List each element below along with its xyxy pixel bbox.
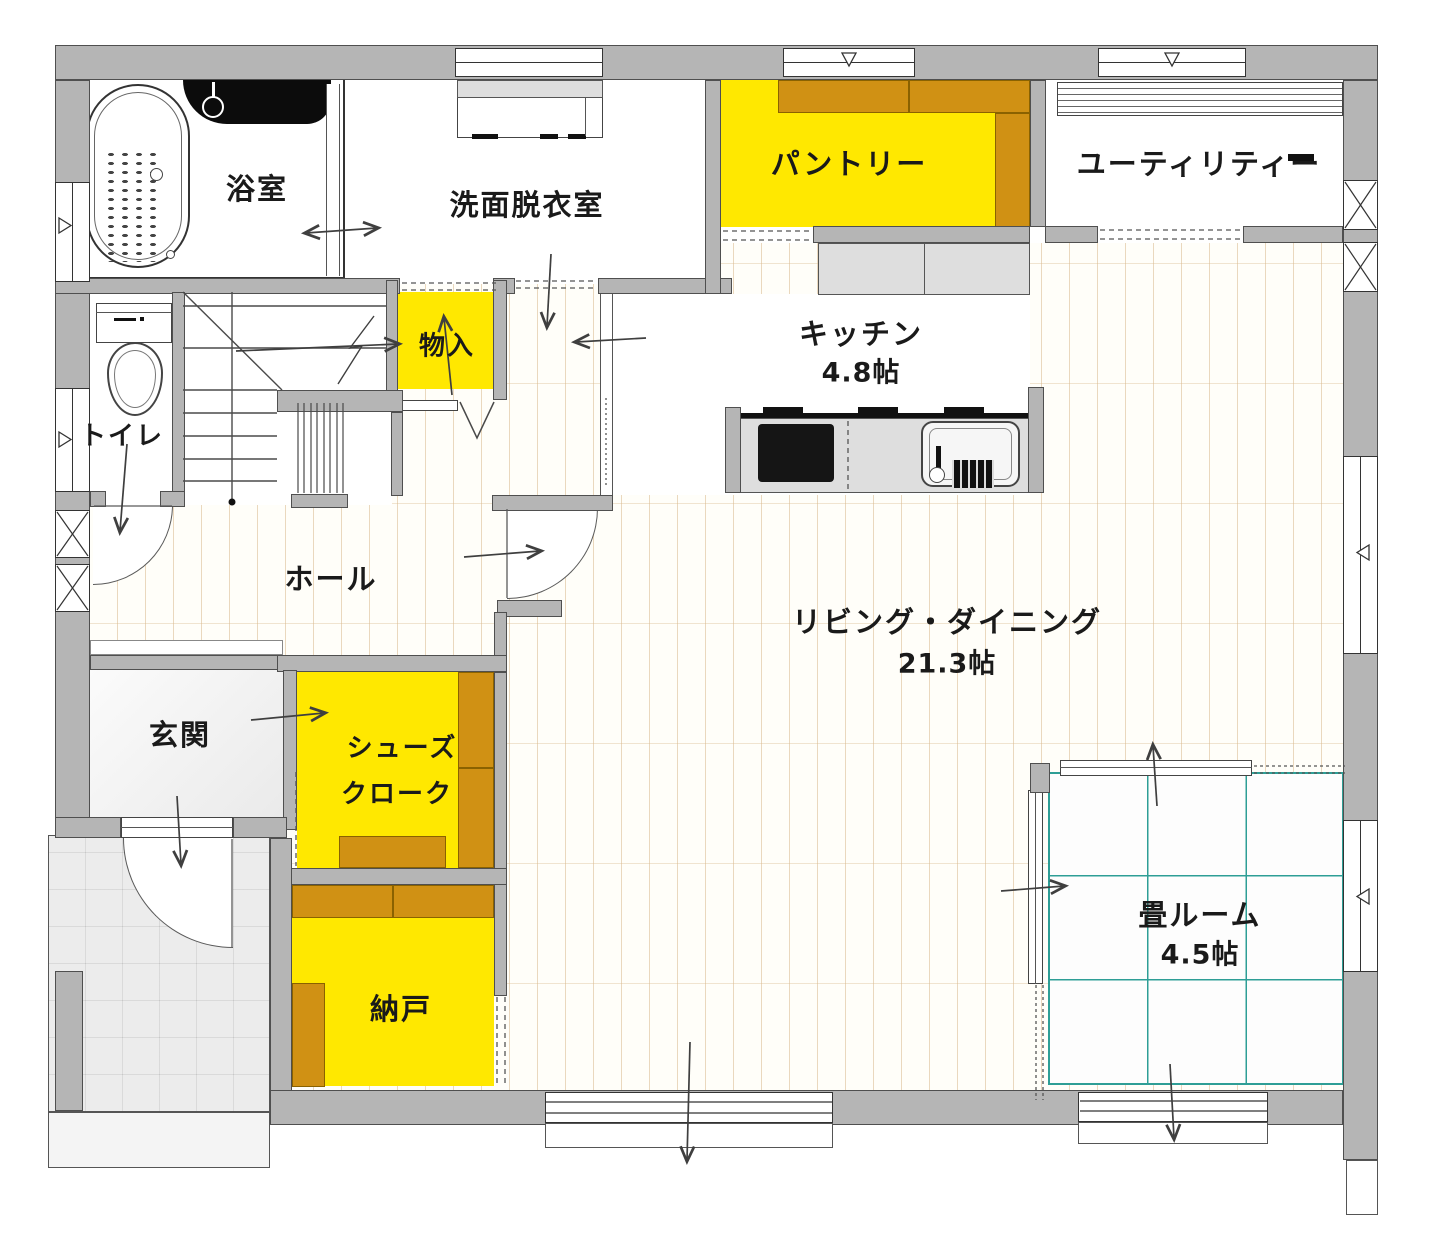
room-label-pantry: パントリー xyxy=(771,141,927,183)
floor-plan: 浴室 洗面脱衣室 パントリー ユーティリティー キッチン 4.8帖 物入 トイレ… xyxy=(0,0,1443,1244)
circulation-arrows xyxy=(120,228,1174,1160)
folding-door-zigzag xyxy=(460,402,494,438)
stair-balusters xyxy=(298,403,343,493)
room-label-bath: 浴室 xyxy=(226,166,288,208)
room-label-living: リビング・ダイニング xyxy=(792,599,1102,641)
room-label-shoe-closet-line2: クローク xyxy=(341,774,453,811)
room-size-tatami: 4.5帖 xyxy=(1161,933,1240,972)
plan-linework xyxy=(0,0,1443,1244)
room-label-toilet: トイレ xyxy=(80,416,164,453)
room-label-shoe-closet-line1: シューズ xyxy=(347,728,458,765)
room-label-washroom: 洗面脱衣室 xyxy=(449,182,604,224)
room-label-hall: ホール xyxy=(284,556,377,598)
casement-window-marks xyxy=(57,182,1376,1113)
room-label-storeroom: 納戸 xyxy=(370,986,432,1028)
room-size-kitchen: 4.8帖 xyxy=(822,351,901,390)
stairs xyxy=(183,292,386,506)
room-label-tatami: 畳ルーム xyxy=(1138,892,1261,934)
room-label-utility: ユーティリティー xyxy=(1077,141,1322,183)
room-label-closet: 物入 xyxy=(419,326,475,363)
room-label-entrance: 玄関 xyxy=(149,712,211,754)
room-size-living: 21.3帖 xyxy=(898,642,997,681)
room-label-kitchen: キッチン xyxy=(799,311,923,353)
